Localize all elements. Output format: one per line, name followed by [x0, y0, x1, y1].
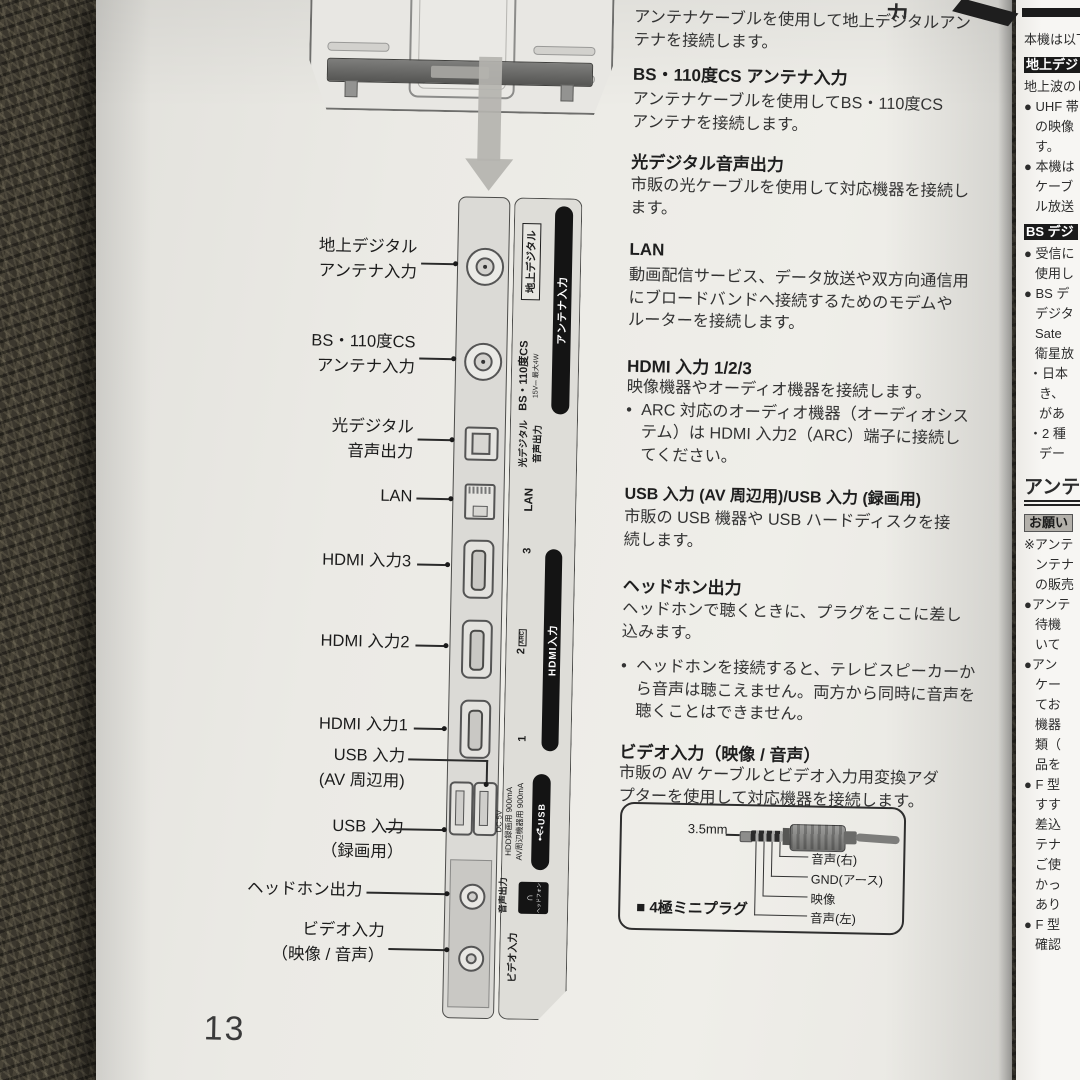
callout-line: （映像 / 音声） [221, 941, 384, 969]
leader-dot [444, 891, 449, 896]
leader-line [416, 498, 452, 500]
terrestrial-digital-tag: 地上デジタル [521, 223, 542, 300]
bullet-text: ヘッドホンを接続すると、テレビスピーカーか ら音声は聴こえません。両方から同時に… [635, 655, 976, 729]
callout-line: USB 入力 [244, 812, 404, 840]
section-lan-heading: LAN [629, 240, 664, 261]
leader-line [419, 358, 455, 360]
pin-label-gnd: GND(アース) [811, 869, 884, 889]
lan-connector-icon [464, 483, 496, 520]
bullet-item: • ARC 対応のオーディオ機器（オーディオシス テム）は HDMI 入力2（A… [625, 398, 998, 473]
hdmi3-number: 3 [521, 548, 533, 554]
section-hdmi-body: 映像機器やオーディオ機器を接続します。 • ARC 対応のオーディオ機器（オーデ… [625, 376, 999, 473]
callout-usb-av: USB 入力 (AV 周辺用) [244, 741, 405, 794]
leader-dot [445, 562, 450, 567]
vent-slot-icon [533, 46, 595, 56]
callout-bs-cs: BS・110度CS アンテナ入力 [243, 327, 416, 380]
section-optical-heading: 光デジタル音声出力 [631, 148, 784, 176]
down-arrow-icon [477, 57, 502, 161]
callout-hdmi3: HDMI 入力3 [261, 546, 411, 574]
section-optical-body: 市販の光ケーブルを使用して対応機器を接続し ます。 [630, 174, 1003, 226]
callout-lan: LAN [320, 483, 412, 510]
plug-size-tick [726, 834, 740, 836]
callout-line: 音声出力 [271, 438, 413, 466]
usb-av-rating: AV周辺機器用 900mA [514, 783, 527, 861]
callout-line: アンテナ入力 [243, 352, 415, 380]
arc-tag: ARC [518, 629, 526, 646]
usb-connector-icon [449, 781, 474, 835]
antenna-input-bar-label: アンテナ入力 [554, 276, 570, 345]
headphone-icon: ∩ [524, 883, 536, 913]
usb-bar-label: USB [535, 803, 547, 841]
leader-line [421, 263, 457, 265]
plug-size-label: 3.5mm [688, 821, 728, 837]
callout-line: 光デジタル [272, 413, 414, 441]
bullet-marker: • [625, 398, 641, 466]
callout-video: ビデオ入力 （映像 / 音声） [221, 916, 385, 969]
mini-plug-diagram-box: 3.5mm 音声(右) GND(アース) 映像 音声(左) ■ 4極ミニプラグ [618, 802, 907, 936]
leader-line [388, 948, 448, 951]
pin-label-audio-right: 音声(右) [811, 849, 857, 869]
jack-zone [447, 859, 492, 1008]
plug-cable [855, 833, 899, 844]
video-in-label: ビデオ入力 [503, 932, 519, 982]
section-lan-body: 動画配信サービス、データ放送や双方向通信用 にブロードバンドへ接続するためのモデ… [628, 264, 1001, 339]
section-usb-heading: USB 入力 (AV 周辺用)/USB 入力 (録画用) [624, 480, 921, 510]
leader-dot [442, 827, 447, 832]
callout-line: （録画用） [243, 837, 403, 865]
tv-foot [560, 84, 573, 101]
bs-cs-main: BS・110度CS [514, 340, 531, 411]
callout-line: HDMI 入力1 [258, 710, 408, 738]
callout-hdmi2: HDMI 入力2 [259, 627, 409, 655]
bullet-marker: • [620, 655, 636, 723]
leader-dot [444, 947, 449, 952]
callout-optical: 光デジタル 音声出力 [271, 413, 414, 466]
usb-power-label: DC 5V HDD録画用 900mA AV周辺機器用 900mA [494, 782, 527, 860]
section-hdmi-heading: HDMI 入力 1/2/3 [627, 352, 752, 379]
tv-foot [344, 80, 357, 97]
caption-text: 4極ミニプラグ [649, 899, 748, 918]
pin-leader-line [754, 841, 808, 916]
optical-connector-icon [464, 426, 499, 461]
callout-hdmi1: HDMI 入力1 [258, 710, 408, 738]
hdmi-input-bar-label: HDMI入力 [543, 624, 559, 676]
vent-slot-icon [327, 42, 389, 52]
bs-cs-label: BS・110度CS 15V⎓ 最大4W [514, 340, 541, 411]
hdmi-connector-icon [461, 619, 493, 679]
callout-line: HDMI 入力2 [259, 627, 409, 655]
callout-line: BS・110度CS [243, 327, 415, 355]
leader-line [366, 892, 448, 895]
coax-connector-icon [464, 342, 503, 381]
section-bs-body: アンテナケーブルを使用してBS・110度CS アンテナを接続します。 [632, 88, 1005, 140]
callout-usb-rec: USB 入力 （録画用） [243, 812, 404, 865]
optical-label-line1: 光デジタル [515, 420, 530, 468]
leader-dot [453, 261, 458, 266]
headphone-chip-label: ∩ ヘッドフォン [524, 883, 543, 913]
optical-label-line2: 音声出力 [529, 420, 544, 468]
callout-line: アンテナ入力 [245, 257, 417, 285]
hdmi1-number: 1 [517, 736, 529, 742]
usb-text: USB [536, 803, 546, 825]
optical-label: 光デジタル 音声出力 [515, 420, 544, 468]
hdmi2-number: 2ARC [515, 629, 528, 654]
leader-dot [450, 437, 455, 442]
callout-line: (AV 周辺用) [244, 766, 404, 794]
leader-dot [448, 496, 453, 501]
callout-line: ビデオ入力 [221, 916, 384, 944]
bullet-text: ARC 対応のオーディオ機器（オーディオシス テム）は HDMI 入力2（ARC… [640, 399, 969, 473]
callout-line: HDMI 入力3 [261, 546, 411, 574]
coax-connector-icon [466, 247, 505, 286]
section-headphone-heading: ヘッドホン出力 [622, 572, 741, 599]
manual-photo: 本機は以下 地上デジ 地上波のし ● UHF 帯 の映像 す。 ● 本機は ケー… [0, 0, 1080, 1080]
headphone-text: ヘッドフォン [535, 883, 543, 913]
page-number: 13 [203, 1009, 246, 1049]
section-terrestrial-body: アンテナケーブルを使用して地上デジタルアン テナを接続します。 [633, 6, 1006, 58]
callout-line: 地上デジタル [245, 232, 417, 260]
page-content: 力 [0, 0, 1080, 1080]
audio-out-label: 音声出力 [496, 877, 510, 913]
hdmi2-digit: 2 [515, 648, 527, 654]
callout-line: LAN [320, 483, 412, 510]
callout-line: ヘッドホン出力 [222, 876, 362, 904]
section-headphone-body: ヘッドホンで聴くときに、プラグをここに差し 込みます。 • ヘッドホンを接続する… [620, 598, 994, 730]
down-arrow-icon [465, 158, 514, 191]
usb-trident-icon [535, 825, 545, 841]
leader-dot [484, 782, 489, 787]
plug-caption: ■ 4極ミニプラグ [636, 896, 748, 919]
caption-square-marker: ■ [636, 899, 645, 916]
leader-dot [451, 356, 456, 361]
section-usb-body: 市販の USB 機器や USB ハードディスクを接 続します。 [623, 506, 996, 558]
pin-label-video: 映像 [810, 889, 835, 908]
hdmi-connector-icon [462, 539, 494, 599]
pin-label-audio-left: 音声(左) [810, 908, 856, 928]
leader-dot [442, 726, 447, 731]
callout-headphone: ヘッドホン出力 [222, 876, 362, 904]
plug-contacts [751, 830, 783, 842]
section-bs-heading: BS・110度CS アンテナ入力 [633, 60, 848, 89]
lan-label: LAN [523, 488, 535, 512]
hdmi-connector-icon [459, 699, 491, 759]
bullet-item: • ヘッドホンを接続すると、テレビスピーカーか ら音声は聴こえません。両方から同… [620, 655, 993, 730]
callout-terrestrial: 地上デジタル アンテナ入力 [245, 232, 418, 285]
leader-line [418, 439, 454, 441]
bs-cs-power-rating: 15V⎓ 最大4W [530, 341, 541, 411]
callout-line: USB 入力 [245, 741, 405, 769]
leader-dot [443, 643, 448, 648]
